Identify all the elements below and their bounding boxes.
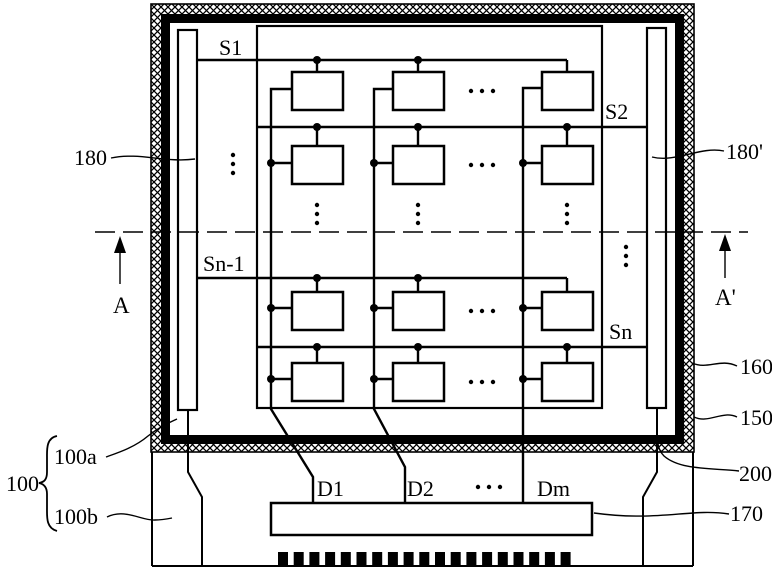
label-d1: D1	[317, 476, 344, 501]
label-100: 100	[6, 471, 39, 496]
label-sn-1: Sn-1	[203, 251, 245, 276]
pixel-cell	[393, 72, 444, 110]
pixel-cell	[542, 363, 593, 401]
pixel-cell	[292, 292, 343, 330]
patent-figure: S1 S2 Sn-1 Sn D1 D2 Dm 180 180' 160 150 …	[0, 0, 772, 573]
display-panel-diagram: S1 S2 Sn-1 Sn D1 D2 Dm 180 180' 160 150 …	[0, 0, 772, 573]
pixel-cell	[542, 292, 593, 330]
driver-ic-block	[271, 503, 592, 535]
pixel-cell	[292, 363, 343, 401]
pixel-cell	[393, 146, 444, 184]
right-driver-bar	[647, 28, 666, 408]
label-100a: 100a	[54, 444, 97, 469]
label-s1: S1	[219, 35, 242, 60]
label-150: 150	[740, 405, 772, 430]
label-sn: Sn	[609, 319, 632, 344]
label-180: 180	[74, 145, 107, 170]
pixel-cell	[393, 363, 444, 401]
label-section-a: A	[113, 293, 130, 318]
leader-150	[694, 415, 737, 419]
pixel-cell	[292, 146, 343, 184]
label-s2: S2	[605, 99, 628, 124]
section-arrow-a-prime	[719, 234, 731, 278]
left-driver-bar	[178, 30, 197, 410]
label-section-a-prime: A'	[715, 285, 736, 310]
section-arrow-a	[114, 236, 126, 284]
label-180-prime: 180'	[726, 139, 763, 164]
label-170: 170	[730, 501, 763, 526]
label-100b: 100b	[54, 504, 98, 529]
leader-100b	[107, 514, 172, 520]
pixel-cell	[292, 72, 343, 110]
label-dm: Dm	[537, 476, 570, 501]
leader-170	[594, 512, 729, 516]
pixel-cell	[393, 292, 444, 330]
label-160: 160	[740, 354, 772, 379]
leader-160	[692, 363, 737, 366]
label-200: 200	[739, 461, 772, 486]
pixel-cell	[542, 146, 593, 184]
pixel-cell	[542, 72, 593, 110]
label-d2: D2	[407, 476, 434, 501]
connector-pads	[278, 552, 571, 566]
